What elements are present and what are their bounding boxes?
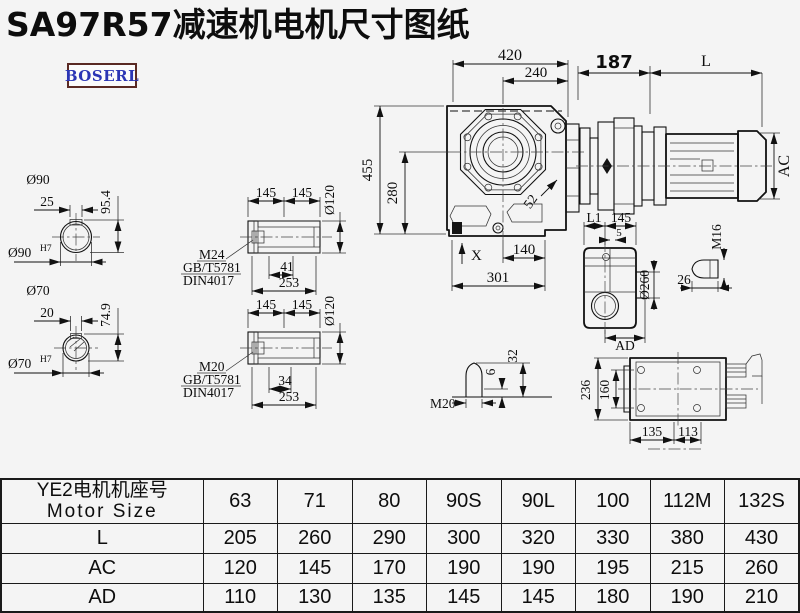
dim-52: 52 (520, 192, 540, 212)
table-cell: 145 (501, 583, 576, 612)
dim-145-d: 145 (292, 297, 313, 312)
drawing-sheet: SA97R57减速机电机尺寸图纸 BOSERL (0, 0, 800, 613)
table-cell: 180 (576, 583, 651, 612)
table-cell: 132S (725, 479, 800, 523)
header-motor-size-en: Motor Size (2, 501, 203, 522)
table-cell: 145 (278, 553, 353, 583)
table-row-AC: AC 120 145 170 190 190 195 215 260 (1, 553, 799, 583)
table-cell: 430 (725, 523, 800, 553)
dim-M16: M16 (709, 224, 724, 250)
label-dia90: Ø90 (26, 172, 49, 187)
header-motor-size: YE2电机机座号 Motor Size (1, 479, 203, 523)
dim-5: 5 (616, 227, 622, 239)
dim-455: 455 (360, 159, 376, 182)
dim-key-25: 25 (40, 194, 54, 209)
dim-x-mark: X (471, 248, 482, 264)
front-view-dimensions: 420 240 455 280 52 140 301 X (360, 47, 568, 291)
dim-236: 236 (578, 380, 593, 401)
table-row-L: L 205 260 290 300 320 330 380 430 (1, 523, 799, 553)
dim-187: 187 (595, 52, 633, 73)
dim-dia260: Ø260 (637, 270, 652, 300)
dim-dia120-b: Ø120 (322, 296, 337, 326)
table-cell: 80 (352, 479, 427, 523)
table-cell: 170 (352, 553, 427, 583)
table-row-AD: AD 110 130 135 145 145 180 190 210 (1, 583, 799, 612)
table-cell: 145 (427, 583, 502, 612)
label-breather-m20: M20 (430, 396, 456, 411)
gearbox-side-view: L1 145 5 Ø260 AD M16 26 (584, 210, 732, 353)
table-cell: 135 (352, 583, 427, 612)
label-din4017-a: DIN4017 (183, 273, 234, 288)
table-cell: 210 (725, 583, 800, 612)
dim-145-c: 145 (256, 297, 277, 312)
dim-253-b: 253 (279, 389, 300, 404)
dim-L1: L1 (587, 210, 602, 225)
dim-26: 26 (677, 272, 691, 287)
dim-113: 113 (678, 424, 698, 439)
front-view (447, 106, 584, 240)
table-cell: 63 (203, 479, 278, 523)
table-header-row: YE2电机机座号 Motor Size 63 71 80 90S 90L 100… (1, 479, 799, 523)
row-label: L (1, 523, 203, 553)
solid-shaft-70-section: Ø70 20 74.9 Ø70 H7 (8, 283, 124, 377)
dim-145-side: 145 (611, 210, 632, 225)
table-cell: 120 (203, 553, 278, 583)
dim-301: 301 (487, 270, 510, 286)
solid-shaft-90-section: Ø90 25 95.4 Ø90 H7 (8, 172, 124, 266)
table-cell: 112M (650, 479, 725, 523)
label-din4017-b: DIN4017 (183, 385, 234, 400)
dim-41: 41 (280, 259, 294, 274)
table-cell: 260 (278, 523, 353, 553)
dim-280: 280 (385, 182, 401, 205)
label-dia70: Ø70 (26, 283, 49, 298)
hollow-shaft-m24-detail: 145 145 Ø120 M24 GB/T5781 DIN4017 41 253 (181, 185, 346, 295)
table-cell: 190 (501, 553, 576, 583)
dim-74-9: 74.9 (98, 303, 113, 327)
dim-420: 420 (498, 47, 522, 64)
dim-160: 160 (597, 380, 612, 401)
dim-34: 34 (278, 373, 292, 388)
row-label: AC (1, 553, 203, 583)
table-cell: 260 (725, 553, 800, 583)
table-cell: 300 (427, 523, 502, 553)
dim-145-a: 145 (256, 185, 277, 200)
table-cell: 110 (203, 583, 278, 612)
dim-key-20: 20 (40, 305, 54, 320)
row-label: AD (1, 583, 203, 612)
motor-dimension-table: YE2电机机座号 Motor Size 63 71 80 90S 90L 100… (0, 478, 800, 613)
dim-L: L (701, 53, 711, 70)
label-fit-90: Ø90 (8, 245, 31, 260)
label-fit-90-sup: H7 (40, 244, 52, 254)
table-cell: 330 (576, 523, 651, 553)
dim-AD: AD (615, 338, 635, 353)
motor-side-view (576, 118, 772, 214)
hollow-shaft-m20-detail: 145 145 Ø120 M20 GB/T5781 DIN4017 34 253 (181, 296, 346, 409)
table-cell: 90L (501, 479, 576, 523)
table-cell: 205 (203, 523, 278, 553)
dim-140: 140 (513, 242, 536, 258)
dim-95-4: 95.4 (98, 190, 113, 214)
label-fit-70-sup: H7 (40, 355, 52, 365)
dim-6: 6 (483, 368, 498, 375)
table-cell: 195 (576, 553, 651, 583)
dim-253-a: 253 (279, 275, 300, 290)
motor-dimensions: 187 L AC (578, 52, 793, 199)
label-fit-70: Ø70 (8, 356, 31, 371)
table-cell: 100 (576, 479, 651, 523)
table-cell: 71 (278, 479, 353, 523)
table-cell: 190 (650, 583, 725, 612)
table-cell: 380 (650, 523, 725, 553)
dim-32: 32 (505, 349, 520, 363)
drain-plug (452, 222, 462, 234)
breather-plug-detail: M20 6 32 (430, 349, 552, 411)
dim-dia120-a: Ø120 (322, 185, 337, 215)
table-cell: 130 (278, 583, 353, 612)
dim-135: 135 (642, 424, 663, 439)
table-cell: 90S (427, 479, 502, 523)
dim-240: 240 (525, 65, 548, 81)
gearbox-top-view: 236 160 135 113 (578, 352, 762, 449)
dim-AC: AC (776, 155, 793, 177)
dim-145-b: 145 (292, 185, 313, 200)
table-cell: 215 (650, 553, 725, 583)
header-motor-size-cn: YE2电机机座号 (2, 480, 203, 501)
table-cell: 190 (427, 553, 502, 583)
table-cell: 290 (352, 523, 427, 553)
table-cell: 320 (501, 523, 576, 553)
technical-drawing: 420 240 455 280 52 140 301 X (0, 0, 800, 478)
